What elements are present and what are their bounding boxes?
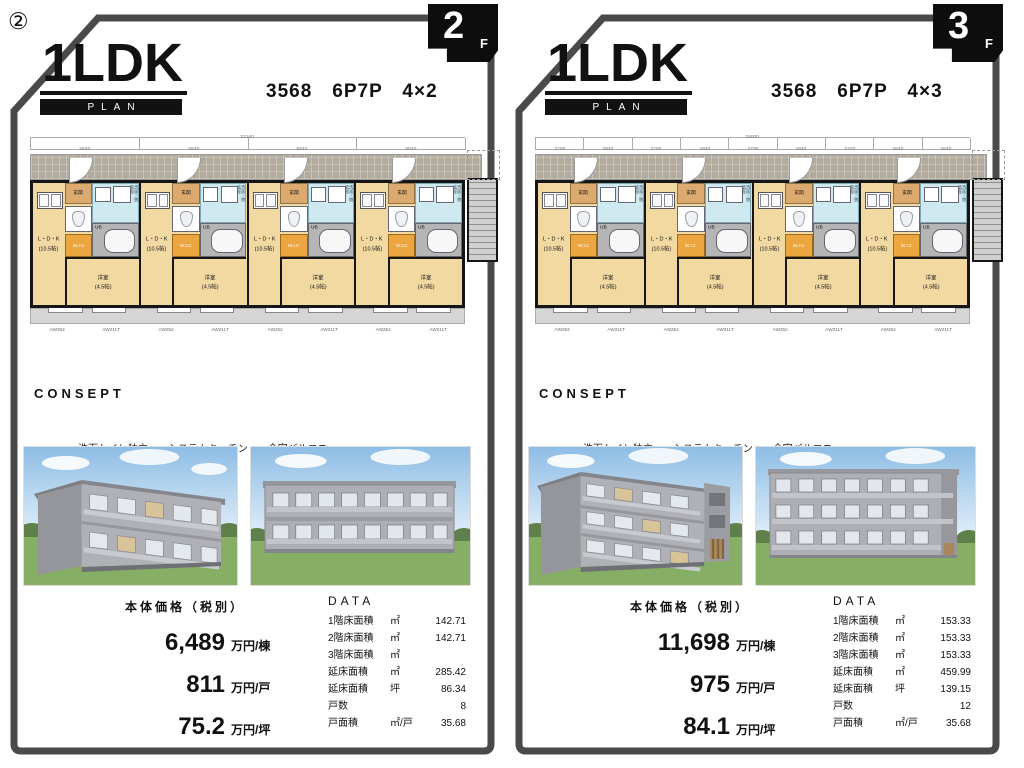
price-value: 75.2	[105, 713, 225, 741]
washer-icon	[328, 186, 346, 203]
washer-icon	[726, 186, 744, 203]
dimension-segment-label: 2700	[747, 146, 758, 152]
floorplan-unit: 玄関洗面・脱衣室W.I.CUBL・D・K(10.5帖)洋室(4.5帖)	[249, 183, 357, 305]
stove-icon	[760, 194, 770, 207]
toilet-room	[893, 206, 920, 232]
dimension-segment: 2700	[535, 138, 583, 149]
building-render-elevation	[250, 446, 471, 586]
bedroom: 洋室(4.5帖)	[280, 257, 354, 305]
bedroom-size: (4.5帖)	[923, 284, 940, 291]
washroom-label: 洗面・脱衣室	[237, 185, 245, 204]
price-unit: 万円/棟	[231, 637, 287, 654]
window-code-label: AW211T	[205, 327, 237, 333]
toilet-icon	[685, 211, 698, 228]
building-render-perspective	[528, 446, 743, 586]
floorplan-drawing: 25000 2700284027002840270028402700284028…	[535, 126, 1003, 348]
price-unit: 万円/戸	[736, 679, 792, 696]
floorplan-unit: 玄関洗面・脱衣室W.I.CUBL・D・K(10.5帖)洋室(4.5帖)	[538, 183, 646, 305]
balcony-strip	[535, 308, 970, 324]
washbasin-icon	[600, 187, 615, 202]
floorplan-drawing: 22160 5540554055405540 玄関洗面・脱衣室W.I.CUBL・…	[30, 126, 498, 348]
price-value: 6,489	[105, 629, 225, 657]
data-unit: ㎡/戸	[895, 715, 929, 732]
walk-in-closet: W.I.C	[893, 234, 920, 257]
dimension-segment: 2840	[680, 138, 728, 149]
bathtub-icon	[716, 229, 747, 252]
unit-bath: UB	[200, 223, 247, 257]
ldk-name: L・D・K	[651, 236, 672, 243]
bedroom-name: 洋室	[205, 274, 216, 281]
washroom: 洗面・脱衣室	[200, 183, 247, 223]
washroom: 洗面・脱衣室	[920, 183, 967, 223]
ldk-name: L・D・K	[543, 236, 564, 243]
sink-icon	[771, 194, 781, 207]
ldk-size: (10.5帖)	[39, 245, 59, 252]
floorplan-unit: 玄関洗面・脱衣室W.I.CUBL・D・K(10.5帖)洋室(4.5帖)	[646, 183, 754, 305]
window-code-label: AW211T	[818, 327, 850, 333]
washroom-label: 洗面・脱衣室	[634, 185, 642, 204]
data-section: DATA 1階床面積㎡153.332階床面積㎡153.333階床面積㎡153.3…	[833, 594, 971, 732]
staircase	[467, 178, 498, 262]
wic-label: W.I.C	[73, 243, 85, 248]
ldk-size: (10.5帖)	[544, 245, 564, 252]
stove-icon	[544, 194, 554, 207]
entrance-room: 玄関	[893, 183, 920, 204]
door-swing-icon	[682, 158, 706, 183]
unit-bath-label: UB	[311, 225, 318, 230]
washroom-label: 洗面・脱衣室	[958, 185, 966, 204]
kitchen-counter-icon	[253, 192, 278, 209]
dimension-total-label: 25000	[746, 134, 760, 140]
washroom-label: 洗面・脱衣室	[742, 185, 750, 204]
data-row: 延床面積㎡459.99	[833, 664, 971, 681]
washroom-label: 洗面・脱衣室	[129, 185, 137, 204]
window-code-label: AW211T	[96, 327, 128, 333]
building-render-elevation	[755, 446, 976, 586]
consept-heading: CONSEPT	[34, 386, 338, 401]
ldk-size: (10.5帖)	[652, 245, 672, 252]
wic-label: W.I.C	[578, 243, 590, 248]
entrance-label: 玄関	[794, 191, 804, 196]
dimension-segment: 5540	[248, 138, 357, 149]
sink-icon	[159, 194, 169, 207]
stove-icon	[362, 194, 372, 207]
entrance-label: 玄関	[74, 191, 84, 196]
ldk-name: L・D・K	[361, 236, 382, 243]
sink-icon	[879, 194, 889, 207]
price-row: 811万円/戸	[105, 671, 287, 699]
data-heading: DATA	[328, 594, 466, 608]
data-label: 延床面積	[328, 681, 390, 698]
data-unit: ㎡	[895, 613, 929, 630]
data-label: 戸面積	[328, 715, 390, 732]
unit-bath-label: UB	[816, 225, 823, 230]
data-unit	[390, 698, 424, 715]
entrance-room: 玄関	[570, 183, 597, 204]
washer-icon	[113, 186, 131, 203]
data-value: 12	[929, 698, 971, 715]
wic-label: W.I.C	[396, 243, 408, 248]
data-value: 153.33	[929, 647, 971, 664]
dimension-segment: 5540	[356, 138, 465, 149]
price-section: 本体価格（税別） 11,698万円/棟975万円/戸84.1万円/坪	[610, 598, 792, 741]
dimension-segment-label: 5540	[297, 146, 308, 152]
data-value: 153.33	[929, 613, 971, 630]
dimension-segment: 2840	[583, 138, 631, 149]
stove-icon	[652, 194, 662, 207]
washroom: 洗面・脱衣室	[92, 183, 139, 223]
data-value: 139.15	[929, 681, 971, 698]
units-row: 玄関洗面・脱衣室W.I.CUBL・D・K(10.5帖)洋室(4.5帖)玄関洗面・…	[535, 180, 970, 308]
data-rows: 1階床面積㎡153.332階床面積㎡153.333階床面積㎡153.33延床面積…	[833, 613, 971, 732]
floor-badge-number: 2	[443, 5, 464, 48]
price-row: 6,489万円/棟	[105, 629, 287, 657]
bedroom: 洋室(4.5帖)	[785, 257, 859, 305]
wic-label: W.I.C	[793, 243, 805, 248]
entrance-room: 玄関	[280, 183, 307, 204]
price-value: 975	[610, 671, 730, 699]
window-code-label: AW252	[764, 327, 796, 333]
ldk-room-label: L・D・K(10.5帖)	[141, 234, 173, 253]
plan-bar-label: PLAN	[40, 99, 182, 115]
toilet-room	[172, 206, 199, 232]
window-code-label: AW211T	[601, 327, 633, 333]
toilet-room	[785, 206, 812, 232]
bathtub-icon	[932, 229, 963, 252]
unit-bath: UB	[920, 223, 967, 257]
bedroom-size: (4.5帖)	[310, 284, 327, 291]
ldk-room-label: L・D・K(10.5帖)	[861, 234, 893, 253]
sink-icon	[51, 194, 61, 207]
price-value: 84.1	[610, 713, 730, 741]
data-row: 1階床面積㎡142.71	[328, 613, 466, 630]
data-label: 戸数	[328, 698, 390, 715]
unit-bath: UB	[92, 223, 139, 257]
data-value: 459.99	[929, 664, 971, 681]
data-row: 3階床面積㎡	[328, 647, 466, 664]
dimension-segment: 2840	[873, 138, 921, 149]
dimension-segments: 270028402700284027002840270028402840	[535, 138, 971, 150]
dimension-segment: 2840	[777, 138, 825, 149]
kitchen-counter-icon	[758, 192, 783, 209]
entrance-room: 玄関	[172, 183, 199, 204]
data-unit	[895, 698, 929, 715]
plan-type-title: 1LDK PLAN	[545, 38, 692, 115]
data-value	[424, 647, 466, 664]
data-row: 延床面積㎡285.42	[328, 664, 466, 681]
walk-in-closet: W.I.C	[677, 234, 704, 257]
unit-bath-label: UB	[95, 225, 102, 230]
data-label: 延床面積	[833, 681, 895, 698]
data-row: 戸面積㎡/戸35.68	[833, 715, 971, 732]
kitchen-counter-icon	[542, 192, 567, 209]
sink-icon	[374, 194, 384, 207]
data-row: 1階床面積㎡153.33	[833, 613, 971, 630]
staircase	[972, 178, 1003, 262]
data-value: 35.68	[424, 715, 466, 732]
data-unit: 坪	[390, 681, 424, 698]
unit-bath-label: UB	[203, 225, 210, 230]
price-heading: 本体価格（税別）	[125, 598, 287, 615]
ldk-size: (10.5帖)	[867, 245, 887, 252]
bedroom: 洋室(4.5帖)	[388, 257, 462, 305]
ldk-name: L・D・K	[254, 236, 275, 243]
walk-in-closet: W.I.C	[785, 234, 812, 257]
toilet-icon	[395, 211, 408, 228]
washroom: 洗面・脱衣室	[415, 183, 462, 223]
ldk-room-label: L・D・K(10.5帖)	[249, 234, 281, 253]
price-row: 11,698万円/棟	[610, 629, 792, 657]
sink-icon	[664, 194, 674, 207]
bedroom-size: (4.5帖)	[815, 284, 832, 291]
data-row: 戸面積㎡/戸35.68	[328, 715, 466, 732]
floorplan-unit: 玄関洗面・脱衣室W.I.CUBL・D・K(10.5帖)洋室(4.5帖)	[33, 183, 141, 305]
window-code-label: AW252	[368, 327, 400, 333]
toilet-icon	[72, 211, 85, 228]
toilet-icon	[793, 211, 806, 228]
kitchen-counter-icon	[145, 192, 170, 209]
stove-icon	[39, 194, 49, 207]
entrance-label: 玄関	[289, 191, 299, 196]
data-label: 3階床面積	[833, 647, 895, 664]
data-label: 2階床面積	[328, 630, 390, 647]
plan-type-title: 1LDK PLAN	[40, 38, 187, 115]
price-unit: 万円/戸	[231, 679, 287, 696]
data-unit: ㎡	[895, 630, 929, 647]
data-row: 2階床面積㎡153.33	[833, 630, 971, 647]
entrance-label: 玄関	[902, 191, 912, 196]
toilet-icon	[288, 211, 301, 228]
washroom-label: 洗面・脱衣室	[345, 185, 353, 204]
stove-icon	[867, 194, 877, 207]
plan-sheet: ② 2 F 1LDK PLAN 3568 6P7P 4×2 22160 5540…	[0, 0, 1024, 768]
bathtub-icon	[319, 229, 350, 252]
entrance-room: 玄関	[785, 183, 812, 204]
kitchen-counter-icon	[650, 192, 675, 209]
window-code-label: AW252	[150, 327, 182, 333]
data-rows: 1階床面積㎡142.712階床面積㎡142.713階床面積㎡延床面積㎡285.4…	[328, 613, 466, 732]
data-label: 戸面積	[833, 715, 895, 732]
data-value: 8	[424, 698, 466, 715]
bedroom-name: 洋室	[710, 274, 721, 281]
window-code-labels: AW252AW211TAW252AW211TAW252AW211TAW252AW…	[535, 325, 970, 335]
walk-in-closet: W.I.C	[65, 234, 92, 257]
toilet-room	[280, 206, 307, 232]
dimension-segment-label: 2700	[554, 146, 565, 152]
stove-icon	[255, 194, 265, 207]
unit-bath: UB	[415, 223, 462, 257]
ldk-size: (10.5帖)	[760, 245, 780, 252]
walk-in-closet: W.I.C	[570, 234, 597, 257]
unit-bath-label: UB	[923, 225, 930, 230]
data-unit: ㎡	[390, 630, 424, 647]
data-label: 1階床面積	[328, 613, 390, 630]
data-value: 35.68	[929, 715, 971, 732]
bedroom-name: 洋室	[97, 274, 108, 281]
price-value: 811	[105, 671, 225, 699]
dimension-segment-label: 5540	[406, 146, 417, 152]
washbasin-icon	[924, 187, 939, 202]
toilet-room	[677, 206, 704, 232]
bedroom-name: 洋室	[818, 274, 829, 281]
price-row: 75.2万円/坪	[105, 713, 287, 741]
ldk-name: L・D・K	[38, 236, 59, 243]
dimension-total: 22160	[30, 126, 465, 138]
data-label: 延床面積	[833, 664, 895, 681]
data-label: 2階床面積	[833, 630, 895, 647]
bathtub-icon	[609, 229, 640, 252]
walk-in-closet: W.I.C	[388, 234, 415, 257]
washroom: 洗面・脱衣室	[813, 183, 860, 223]
door-swing-icon	[177, 158, 201, 183]
price-row: 84.1万円/坪	[610, 713, 792, 741]
dimension-segment-label: 2840	[699, 146, 710, 152]
window-code-label: AW211T	[710, 327, 742, 333]
bedroom: 洋室(4.5帖)	[65, 257, 139, 305]
balcony-strip	[30, 308, 465, 324]
price-unit: 万円/坪	[231, 721, 287, 738]
price-unit: 万円/坪	[736, 721, 792, 738]
ldk-name: L・D・K	[759, 236, 780, 243]
bedroom-size: (4.5帖)	[707, 284, 724, 291]
consept-heading: CONSEPT	[539, 386, 843, 401]
units-row: 玄関洗面・脱衣室W.I.CUBL・D・K(10.5帖)洋室(4.5帖)玄関洗面・…	[30, 180, 465, 308]
unit-bath-label: UB	[418, 225, 425, 230]
ldk-name: L・D・K	[146, 236, 167, 243]
window-code-label: AW211T	[927, 327, 959, 333]
data-label: 1階床面積	[833, 613, 895, 630]
unit-bath: UB	[705, 223, 752, 257]
price-section: 本体価格（税別） 6,489万円/棟811万円/戸75.2万円/坪	[105, 598, 287, 741]
washbasin-icon	[816, 187, 831, 202]
bedroom: 洋室(4.5帖)	[570, 257, 644, 305]
bedroom: 洋室(4.5帖)	[893, 257, 967, 305]
bathtub-icon	[211, 229, 242, 252]
price-rows: 6,489万円/棟811万円/戸75.2万円/坪	[105, 629, 287, 741]
window-code-label: AW211T	[313, 327, 345, 333]
dimension-segment-label: 2840	[941, 146, 952, 152]
washbasin-icon	[311, 187, 326, 202]
data-unit: 坪	[895, 681, 929, 698]
floor-badge-suffix: F	[480, 36, 488, 51]
washroom: 洗面・脱衣室	[597, 183, 644, 223]
data-heading: DATA	[833, 594, 971, 608]
entrance-label: 玄関	[686, 191, 696, 196]
bedroom-size: (4.5帖)	[418, 284, 435, 291]
toilet-room	[570, 206, 597, 232]
washroom: 洗面・脱衣室	[308, 183, 355, 223]
ldk-name: L・D・K	[866, 236, 887, 243]
ldk-size: (10.5帖)	[362, 245, 382, 252]
window-code-label: AW252	[546, 327, 578, 333]
unit-bath-label: UB	[708, 225, 715, 230]
floorplan-unit: 玄関洗面・脱衣室W.I.CUBL・D・K(10.5帖)洋室(4.5帖)	[861, 183, 967, 305]
ldk-size: (10.5帖)	[255, 245, 275, 252]
data-unit: ㎡	[390, 613, 424, 630]
plan-bar-label: PLAN	[545, 99, 687, 115]
floorplan-unit: 玄関洗面・脱衣室W.I.CUBL・D・K(10.5帖)洋室(4.5帖)	[141, 183, 249, 305]
data-row: 延床面積坪86.34	[328, 681, 466, 698]
window-code-label: AW252	[655, 327, 687, 333]
data-unit: ㎡	[895, 647, 929, 664]
dimension-total-label: 22160	[241, 134, 255, 140]
ldk-room-label: L・D・K(10.5帖)	[356, 234, 388, 253]
toilet-icon	[900, 211, 913, 228]
toilet-room	[388, 206, 415, 232]
bathtub-icon	[427, 229, 458, 252]
bedroom-name: 洋室	[313, 274, 324, 281]
dimension-segment-label: 5540	[79, 146, 90, 152]
door-swing-icon	[392, 158, 416, 183]
ldk-size: (10.5帖)	[147, 245, 167, 252]
dimension-total: 25000	[535, 126, 970, 138]
data-section: DATA 1階床面積㎡142.712階床面積㎡142.713階床面積㎡延床面積㎡…	[328, 594, 466, 732]
dimension-segment: 5540	[30, 138, 139, 149]
corridor-extension-outline	[972, 150, 1005, 180]
price-heading: 本体価格（税別）	[630, 598, 792, 615]
bedroom-size: (4.5帖)	[94, 284, 111, 291]
data-unit: ㎡/戸	[390, 715, 424, 732]
walk-in-closet: W.I.C	[172, 234, 199, 257]
entrance-room: 玄関	[388, 183, 415, 204]
dimension-segment: 2700	[632, 138, 680, 149]
dimension-segment-label: 5540	[188, 146, 199, 152]
unit-bath: UB	[597, 223, 644, 257]
entrance-room: 玄関	[65, 183, 92, 204]
data-value: 86.34	[424, 681, 466, 698]
stove-icon	[147, 194, 157, 207]
floor-badge-number: 3	[948, 5, 969, 48]
price-value: 11,698	[610, 629, 730, 657]
walk-in-closet: W.I.C	[280, 234, 307, 257]
dimension-segment-label: 2840	[796, 146, 807, 152]
data-value: 142.71	[424, 630, 466, 647]
dimension-segment-label: 2700	[844, 146, 855, 152]
dimension-segment-label: 2840	[602, 146, 613, 152]
price-rows: 11,698万円/棟975万円/戸84.1万円/坪	[610, 629, 792, 741]
window-code-labels: AW252AW211TAW252AW211TAW252AW211TAW252AW…	[30, 325, 465, 335]
plan-panel-3f: 3 F 1LDK PLAN 3568 6P7P 4×3 25000 270028…	[515, 0, 1007, 768]
wic-label: W.I.C	[685, 243, 697, 248]
entrance-label: 玄関	[397, 191, 407, 196]
ldk-room-label: L・D・K(10.5帖)	[646, 234, 678, 253]
ldk-room-label: L・D・K(10.5帖)	[754, 234, 786, 253]
washbasin-icon	[419, 187, 434, 202]
data-unit: ㎡	[390, 664, 424, 681]
toilet-room	[65, 206, 92, 232]
kitchen-counter-icon	[360, 192, 385, 209]
door-swing-icon	[897, 158, 921, 183]
washbasin-icon	[95, 187, 110, 202]
toilet-icon	[577, 211, 590, 228]
wic-label: W.I.C	[288, 243, 300, 248]
window-code-label: AW252	[41, 327, 73, 333]
bedroom-name: 洋室	[602, 274, 613, 281]
data-value: 285.42	[424, 664, 466, 681]
washer-icon	[221, 186, 239, 203]
bathtub-icon	[104, 229, 135, 252]
washer-icon	[436, 186, 454, 203]
sink-icon	[556, 194, 566, 207]
bedroom-name: 洋室	[421, 274, 432, 281]
dimension-segment: 2700	[825, 138, 873, 149]
bedroom-name: 洋室	[926, 274, 937, 281]
kitchen-counter-icon	[37, 192, 62, 209]
washroom-label: 洗面・脱衣室	[453, 185, 461, 204]
data-value: 153.33	[929, 630, 971, 647]
sink-icon	[266, 194, 276, 207]
price-row: 975万円/戸	[610, 671, 792, 699]
